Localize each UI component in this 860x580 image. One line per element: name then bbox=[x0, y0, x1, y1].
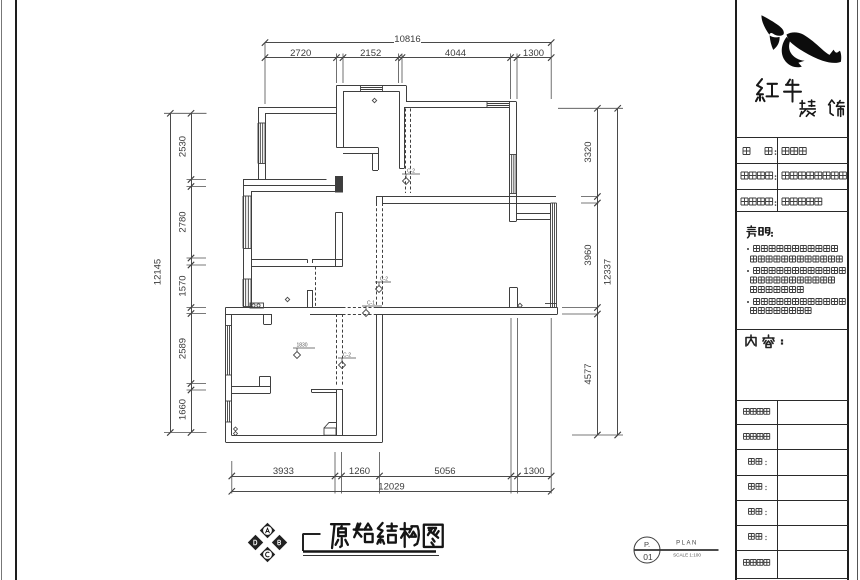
svg-text:3320: 3320 bbox=[583, 141, 594, 162]
svg-text:1260: 1260 bbox=[349, 466, 370, 477]
svg-text:2589: 2589 bbox=[178, 338, 189, 359]
svg-text:2530: 2530 bbox=[178, 136, 189, 157]
svg-text:4044: 4044 bbox=[445, 48, 466, 59]
svg-text:5056: 5056 bbox=[434, 466, 455, 477]
svg-text:C-2: C-2 bbox=[380, 277, 388, 283]
svg-text:C-2: C-2 bbox=[343, 353, 351, 359]
svg-text:2152: 2152 bbox=[360, 48, 381, 59]
svg-text:3960: 3960 bbox=[583, 244, 594, 265]
svg-text:C-2: C-2 bbox=[407, 169, 415, 175]
svg-text:2720: 2720 bbox=[290, 48, 311, 59]
svg-text:10816: 10816 bbox=[394, 34, 420, 45]
svg-text:12029: 12029 bbox=[378, 482, 404, 493]
svg-text:1830: 1830 bbox=[296, 343, 307, 349]
svg-text:01: 01 bbox=[643, 552, 653, 562]
svg-text:12337: 12337 bbox=[603, 259, 614, 285]
svg-text:12145: 12145 bbox=[153, 259, 164, 285]
svg-text:P.: P. bbox=[644, 540, 650, 549]
svg-text:PLAN: PLAN bbox=[676, 541, 698, 547]
svg-text:C-1: C-1 bbox=[367, 301, 375, 307]
svg-text:1570: 1570 bbox=[178, 275, 189, 296]
svg-text:4577: 4577 bbox=[583, 363, 594, 384]
svg-text:3933: 3933 bbox=[273, 466, 294, 477]
svg-text:1660: 1660 bbox=[178, 399, 189, 420]
svg-text:2780: 2780 bbox=[178, 211, 189, 232]
svg-text:1300: 1300 bbox=[523, 48, 544, 59]
svg-text:SCALE 1:100: SCALE 1:100 bbox=[673, 553, 701, 558]
svg-text:1300: 1300 bbox=[523, 466, 544, 477]
